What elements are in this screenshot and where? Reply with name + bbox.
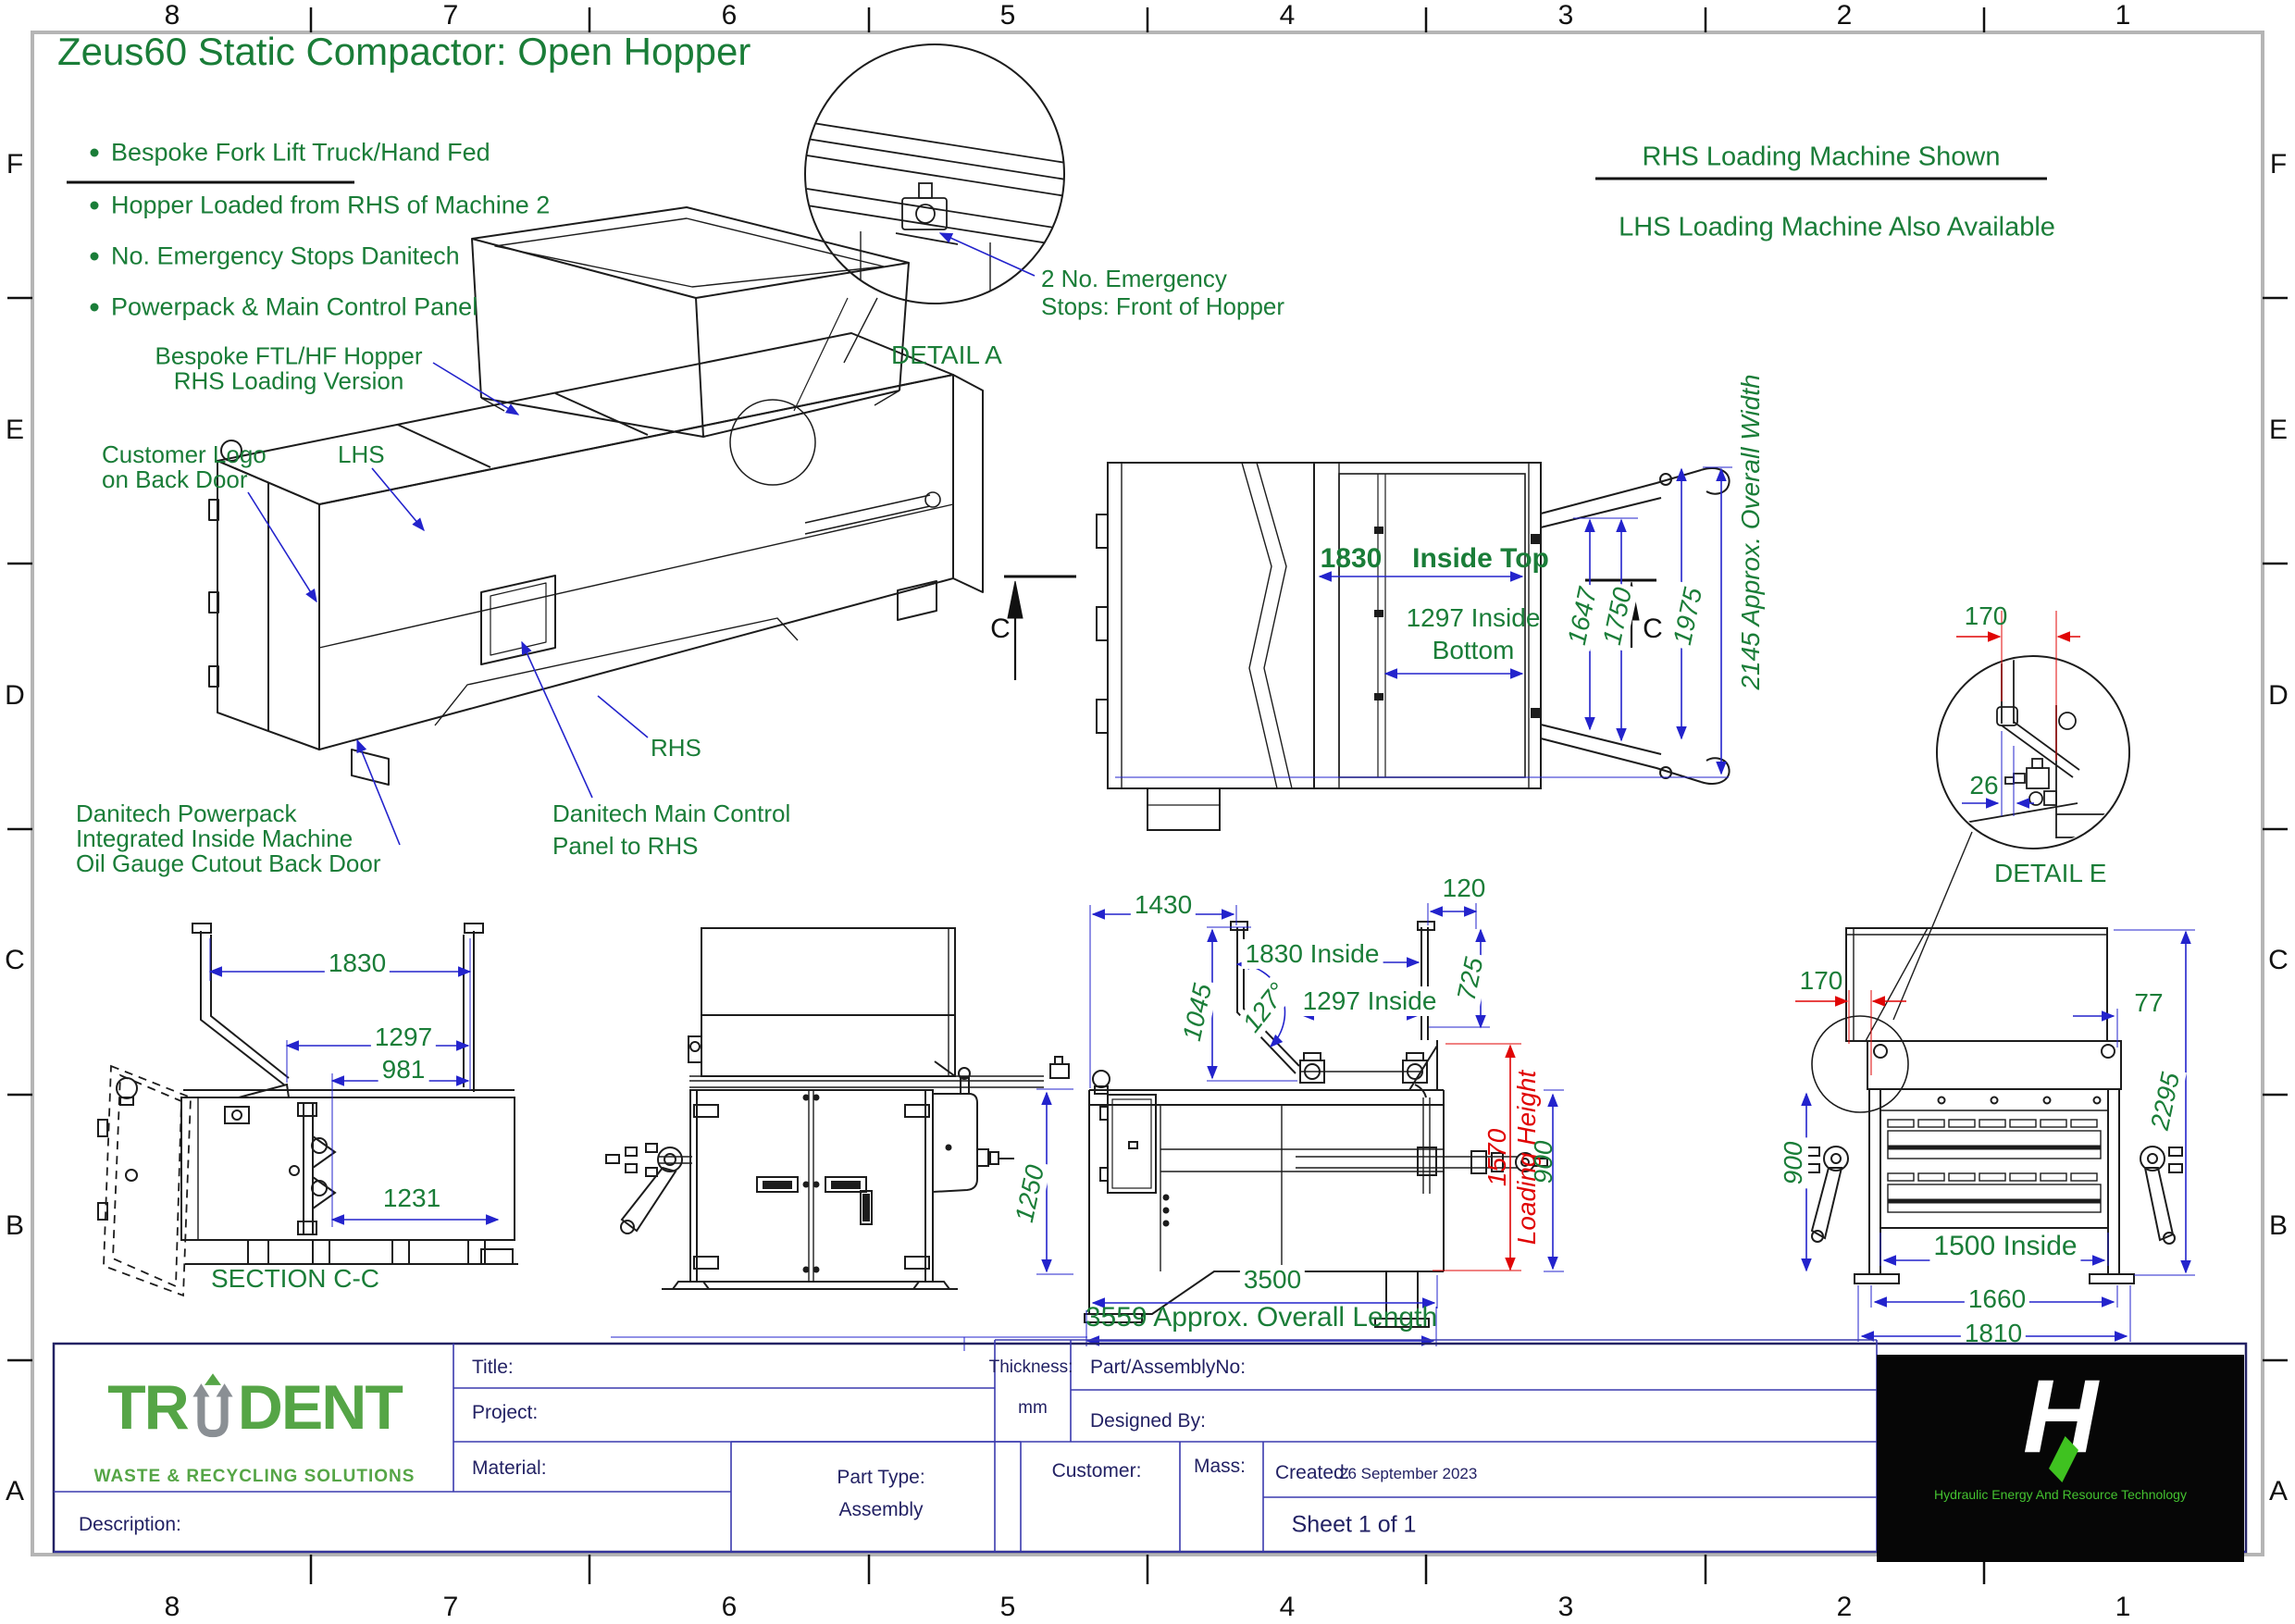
annotation-customer-logo-line1: Customer Logo xyxy=(102,442,267,467)
drawing-sheet: 8 7 6 5 4 3 2 1 8 7 6 5 4 3 2 1 F E D C … xyxy=(0,0,2295,1624)
bullet-icon xyxy=(91,253,99,261)
field-designed-by: Designed By: xyxy=(1090,1410,1206,1432)
bullet-icon xyxy=(91,149,99,157)
dim-side-1430: 1430 xyxy=(1131,890,1196,920)
dim-right-77: 77 xyxy=(2134,988,2163,1018)
annotation-lhs: LHS xyxy=(338,442,385,467)
page-title: Zeus60 Static Compactor: Open Hopper xyxy=(57,30,751,74)
zone-row-right: D xyxy=(2268,680,2289,712)
zone-row-left: D xyxy=(5,680,25,712)
dim-plan-1297: 1297 Inside xyxy=(1407,603,1541,633)
annotation-main-control-line2: Panel to RHS xyxy=(552,834,699,859)
heart-tagline: Hydraulic Energy And Resource Technology xyxy=(1934,1487,2187,1502)
dim-side-120: 120 xyxy=(1439,874,1490,903)
annotation-rhs: RHS xyxy=(651,736,701,761)
bullet-item: Powerpack & Main Control Panel xyxy=(111,293,478,322)
zone-row-right: B xyxy=(2269,1210,2288,1242)
zone-row-right: E xyxy=(2269,415,2288,446)
dim-side-3500: 3500 xyxy=(1240,1265,1305,1295)
zone-row-left: E xyxy=(6,415,24,446)
field-material: Material: xyxy=(472,1457,547,1480)
annotation-hopper-line1: Bespoke FTL/HF Hopper xyxy=(155,344,422,369)
section-c-markers xyxy=(1004,576,1656,680)
zone-col-top: 7 xyxy=(443,0,459,31)
bullet-item: Bespoke Fork Lift Truck/Hand Fed xyxy=(111,139,490,167)
zone-col-top: 2 xyxy=(1837,0,1853,31)
trident-logo-tr: TR xyxy=(107,1375,188,1440)
note-lhs-available: LHS Loading Machine Also Available xyxy=(1619,213,2055,243)
dim-plan-1830: 1830 xyxy=(1321,543,1383,575)
bullet-item: No. Emergency Stops Danitech xyxy=(111,242,460,271)
dim-plan-1297-bottom: Bottom xyxy=(1433,636,1515,665)
annotation-powerpack-line2: Integrated Inside Machine xyxy=(76,826,353,851)
zone-col-bottom: 8 xyxy=(165,1592,180,1623)
dim-section-981: 981 xyxy=(378,1055,429,1085)
field-thickness: Thickness: xyxy=(989,1357,1073,1378)
trident-logo: TR DENT WASTE & RECYCLING SOLUTIONS xyxy=(65,1368,444,1493)
trident-arrow-icon xyxy=(188,1373,238,1445)
zone-row-right: A xyxy=(2269,1476,2288,1507)
dim-side-overall-length: 3559 Approx. Overall Length xyxy=(1085,1302,1437,1333)
zone-col-bottom: 3 xyxy=(1558,1592,1574,1623)
field-part-type: Part Type: xyxy=(837,1467,924,1489)
annotation-main-control-line1: Danitech Main Control xyxy=(552,801,790,826)
dim-section-1830: 1830 xyxy=(325,948,390,978)
dim-detail-e-170: 170 xyxy=(1965,601,2008,631)
zone-col-top: 3 xyxy=(1558,0,1574,31)
dim-plan-inside-top: Inside Top xyxy=(1412,543,1549,575)
dim-section-1231: 1231 xyxy=(379,1184,444,1213)
dim-side-1297-inside: 1297 Inside xyxy=(1299,986,1441,1016)
zone-col-top: 5 xyxy=(1000,0,1016,31)
field-part-no: Part/AssemblyNo: xyxy=(1090,1357,1246,1379)
dim-right-1660: 1660 xyxy=(1965,1284,2029,1314)
zone-col-bottom: 5 xyxy=(1000,1592,1016,1623)
bullet-icon xyxy=(91,202,99,210)
trident-logo-dent: DENT xyxy=(238,1375,402,1440)
field-part-type-value: Assembly xyxy=(838,1499,923,1521)
field-mass: Mass: xyxy=(1194,1456,1246,1478)
front-view xyxy=(606,928,1069,1289)
note-rhs-shown: RHS Loading Machine Shown xyxy=(1643,143,2001,173)
bullet-item: Hopper Loaded from RHS of Machine 2 xyxy=(111,192,550,220)
field-sheet-number: Sheet 1 of 1 xyxy=(1292,1512,1417,1539)
section-view xyxy=(98,924,518,1295)
dim-side-1830-inside: 1830 Inside xyxy=(1242,939,1383,969)
field-thickness-unit: mm xyxy=(1018,1398,1048,1419)
zone-row-left: F xyxy=(6,149,23,180)
field-customer: Customer: xyxy=(1052,1460,1142,1482)
annotation-estops-line1: 2 No. Emergency xyxy=(1041,267,1227,291)
dim-side-1570: 1570 xyxy=(1482,1129,1512,1186)
dim-right-1500-inside: 1500 Inside xyxy=(1929,1231,2080,1262)
zone-col-bottom: 4 xyxy=(1280,1592,1296,1623)
zone-col-bottom: 1 xyxy=(2115,1592,2131,1623)
zone-row-left: C xyxy=(5,945,25,976)
dim-section-1297: 1297 xyxy=(371,1023,436,1052)
bullet-icon xyxy=(91,304,99,312)
zone-col-top: 1 xyxy=(2115,0,2131,31)
detail-a-label: DETAIL A xyxy=(891,342,1002,367)
dim-plan-overall-width: 2145 Approx. Overall Width xyxy=(1736,374,1766,689)
zone-col-top: 4 xyxy=(1280,0,1296,31)
dim-detail-e-26: 26 xyxy=(1969,771,1998,800)
zone-row-right: F xyxy=(2270,149,2287,180)
field-title: Title: xyxy=(472,1357,514,1379)
field-created-value: 26 September 2023 xyxy=(1339,1465,1477,1483)
heart-logo: H Hydraulic Energy And Resource Technolo… xyxy=(1877,1355,2244,1562)
dim-side-900: 900 xyxy=(1529,1141,1558,1184)
annotation-hopper-line2: RHS Loading Version xyxy=(174,369,404,394)
zone-row-left: B xyxy=(6,1210,24,1242)
field-project: Project: xyxy=(472,1402,538,1424)
annotation-estops-line2: Stops: Front of Hopper xyxy=(1041,294,1284,319)
zone-col-bottom: 6 xyxy=(722,1592,738,1623)
zone-col-top: 8 xyxy=(165,0,180,31)
detail-a-circle xyxy=(805,44,1066,363)
zone-row-left: A xyxy=(6,1476,24,1507)
section-cc-label: SECTION C-C xyxy=(211,1266,379,1291)
zone-col-bottom: 2 xyxy=(1837,1592,1853,1623)
dim-right-170: 170 xyxy=(1800,966,1843,996)
zone-row-right: C xyxy=(2268,945,2289,976)
dimension-lines-blue xyxy=(210,233,2195,1351)
detail-e-label: DETAIL E xyxy=(1994,861,2106,886)
detail-e-circle xyxy=(1893,656,2129,1020)
dim-right-1810: 1810 xyxy=(1961,1319,2026,1348)
zone-col-top: 6 xyxy=(722,0,738,31)
dim-right-900: 900 xyxy=(1779,1138,1808,1189)
section-marker-c-right: C xyxy=(1643,614,1663,645)
zone-col-bottom: 7 xyxy=(443,1592,459,1623)
section-marker-c-left: C xyxy=(990,614,1011,645)
annotation-customer-logo-line2: on Back Door xyxy=(102,467,248,492)
field-description: Description: xyxy=(79,1514,181,1536)
annotation-powerpack-line3: Oil Gauge Cutout Back Door xyxy=(76,851,381,876)
trident-tagline: WASTE & RECYCLING SOLUTIONS xyxy=(94,1467,416,1487)
annotation-powerpack-line1: Danitech Powerpack xyxy=(76,801,296,826)
